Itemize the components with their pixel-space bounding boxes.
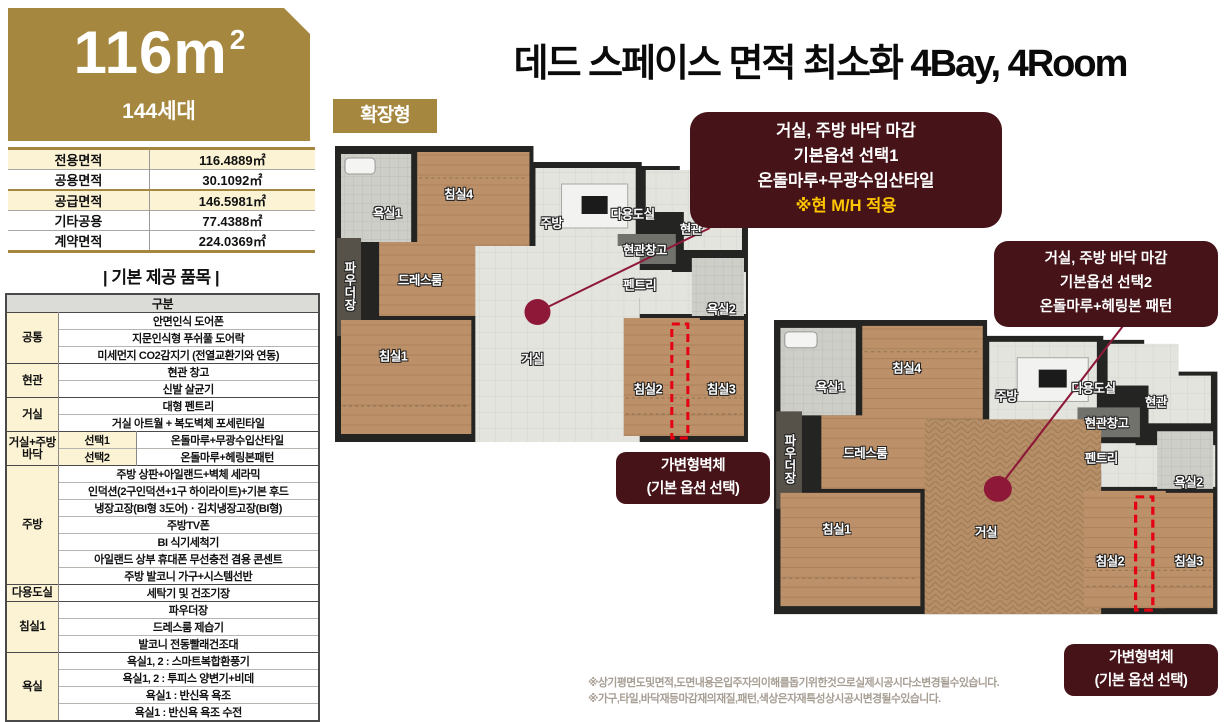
- callout-line: 온돌마루+헤링본 패턴: [994, 295, 1218, 319]
- footer-note-line: ※상기평면도및면적,도면내용은입주자의이해를돕기위한것으로실제시공시다소변경될수…: [588, 676, 999, 692]
- footer-note-line: ※가구,타일,바닥재등마감재의재질,패턴,색상은자재특성상시공시변경될수있습니다…: [588, 692, 999, 708]
- group-label: 거실: [6, 398, 58, 432]
- area-value: 224.0369㎡: [149, 231, 315, 252]
- room-label-living: 거실: [521, 348, 543, 367]
- room-label-kitchen: 주방: [540, 212, 562, 231]
- room-label-bed3: 침실3: [1174, 551, 1202, 570]
- unit-size-superscript: 2: [230, 24, 247, 55]
- room-label-pantry: 펜트리: [1085, 448, 1118, 467]
- callout-line: 온돌마루+무광수입산타일: [690, 169, 1002, 194]
- room-label-powder: 파우더장: [780, 434, 799, 484]
- movable-wall-label-2: 가변형벽체 (기본 옵션 선택): [1064, 644, 1218, 696]
- table-row: 욕실욕실1, 2 : 스마트복합환풍기: [6, 653, 319, 670]
- area-label: 공급면적: [8, 190, 149, 211]
- area-label: 전용면적: [8, 149, 149, 170]
- item-cell: 파우더장: [58, 602, 319, 619]
- item-cell: 드레스룸 제습기: [58, 619, 319, 636]
- item-cell: 주방 발코니 가구+시스템선반: [58, 568, 319, 585]
- item-cell: BI 식기세척기: [58, 534, 319, 551]
- table-row: 현관현관 창고: [6, 364, 319, 381]
- wall-label-line: 가변형벽체: [616, 455, 770, 478]
- table-row: 침실1파우더장: [6, 602, 319, 619]
- item-cell: 신발 살균기: [58, 381, 319, 398]
- room-label-living: 거실: [975, 521, 997, 540]
- item-cell: 지문인식형 푸쉬풀 도어락: [58, 330, 319, 347]
- item-cell: 욕실1, 2 : 투피스 양변기+비데: [58, 670, 319, 687]
- group-label: 공통: [6, 313, 58, 364]
- wall-label-line: (기본 옵션 선택): [616, 478, 770, 501]
- table-row: 기타공용 77.4388㎡: [8, 211, 315, 231]
- table-row: 거실+주방바닥선택1온돌마루+무광수입산타일: [6, 432, 319, 449]
- item-cell: 욕실1, 2 : 스마트복합환풍기: [58, 653, 319, 670]
- callout-line: 거실, 주방 바닥 마감: [994, 247, 1218, 271]
- item-cell: 인덕션(2구인덕션+1구 하이라이트)+기본 후드: [58, 483, 319, 500]
- callout-line: 기본옵션 선택1: [690, 144, 1002, 169]
- option-value: 온돌마루+무광수입산타일: [136, 432, 319, 449]
- area-summary-table: 전용면적 116.4889㎡ 공용면적 30.1092㎡ 공급면적 146.59…: [8, 147, 315, 253]
- room-label-bed2: 침실2: [1096, 551, 1124, 570]
- group-label: 침실1: [6, 602, 58, 653]
- item-cell: 미세먼지 CO2감지기 (전열교환기와 연동): [58, 347, 319, 364]
- item-cell: 욕실1 : 반신욕 욕조: [58, 687, 319, 704]
- room-label-bed3: 침실3: [707, 378, 735, 397]
- room-label-dressroom: 드레스룸: [398, 269, 442, 288]
- item-cell: 거실 아트월 + 복도벽체 포세린타일: [58, 415, 319, 432]
- callout-highlight: ※현 M/H 적용: [690, 194, 1002, 219]
- items-section-title: | 기본 제공 품목 |: [0, 263, 322, 288]
- table-row: 전용면적 116.4889㎡: [8, 149, 315, 170]
- area-value: 77.4388㎡: [149, 211, 315, 231]
- households-count: 144세대: [122, 95, 196, 125]
- area-label: 계약면적: [8, 231, 149, 252]
- room-label-bath1: 욕실1: [373, 203, 401, 222]
- page-title: 데드 스페이스 면적 최소화 4Bay, 4Room: [470, 32, 1170, 87]
- room-label-powder: 파우더장: [340, 261, 359, 311]
- wall-label-line: (기본 옵션 선택): [1064, 670, 1218, 693]
- floor-plan-2: 욕실1 침실4 주방 다용도실 현관 현관창고 펜트리 파우더장 드레스룸 침실…: [774, 314, 1225, 627]
- table-row: 계약면적 224.0369㎡: [8, 231, 315, 252]
- table-row: 공용면적 30.1092㎡: [8, 170, 315, 191]
- room-label-entrance-storage: 현관창고: [623, 239, 667, 258]
- callout-floor-option-1: 거실, 주방 바닥 마감 기본옵션 선택1 온돌마루+무광수입산타일 ※현 M/…: [690, 112, 1002, 228]
- movable-wall-label-1: 가변형벽체 (기본 옵션 선택): [616, 452, 770, 504]
- room-label-utility: 다용도실: [611, 204, 655, 223]
- room-label-bath1: 욕실1: [816, 376, 844, 395]
- room-label-entrance: 현관: [1145, 392, 1167, 411]
- item-cell: 안면인식 도어폰: [58, 313, 319, 330]
- group-label: 주방: [6, 466, 58, 585]
- callout-line: 기본옵션 선택2: [994, 271, 1218, 295]
- option-name: 선택1: [58, 432, 136, 449]
- room-label-kitchen: 주방: [995, 386, 1017, 405]
- expansion-type-badge: 확장형: [333, 99, 437, 133]
- table-row: 다용도실세탁기 및 건조기장: [6, 585, 319, 602]
- footer-notes: ※상기평면도및면적,도면내용은입주자의이해를돕기위한것으로실제시공시다소변경될수…: [588, 676, 999, 707]
- table-row: 공통안면인식 도어폰: [6, 313, 319, 330]
- callout-floor-option-2: 거실, 주방 바닥 마감 기본옵션 선택2 온돌마루+헤링본 패턴: [994, 241, 1218, 327]
- item-cell: 아일랜드 상부 휴대폰 무선충전 겸용 콘센트: [58, 551, 319, 568]
- room-label-bed1: 침실1: [379, 346, 407, 365]
- item-cell: 주방 상판+아일랜드+벽체 세라믹: [58, 466, 319, 483]
- item-cell: 주방TV폰: [58, 517, 319, 534]
- group-label: 거실+주방바닥: [6, 432, 58, 466]
- room-label-bed4: 침실4: [892, 357, 920, 376]
- column-header: 구분: [6, 294, 319, 313]
- room-label-bed4: 침실4: [444, 183, 472, 202]
- provided-items-table: 구분 공통안면인식 도어폰 지문인식형 푸쉬풀 도어락 미세먼지 CO2감지기 …: [5, 293, 320, 722]
- area-value: 116.4889㎡: [149, 149, 315, 170]
- room-label-bed2: 침실2: [634, 378, 662, 397]
- room-label-bath2: 욕실2: [707, 298, 735, 317]
- room-label-bath2: 욕실2: [1174, 471, 1202, 490]
- callout-line: 거실, 주방 바닥 마감: [690, 119, 1002, 144]
- item-cell: 세탁기 및 건조기장: [58, 585, 319, 602]
- area-value: 146.5981㎡: [149, 190, 315, 211]
- table-row: 거실대형 펜트리: [6, 398, 319, 415]
- room-label-entrance-storage: 현관창고: [1085, 413, 1129, 432]
- table-header-row: 구분: [6, 294, 319, 313]
- group-label: 욕실: [6, 653, 58, 722]
- wall-label-line: 가변형벽체: [1064, 647, 1218, 670]
- room-label-dressroom: 드레스룸: [843, 443, 887, 462]
- item-cell: 냉장고장(BI형 3도어)ㆍ김치냉장고장(BI형): [58, 500, 319, 517]
- unit-size-banner: 116m2 144세대: [8, 8, 310, 141]
- option-name: 선택2: [58, 449, 136, 466]
- item-cell: 현관 창고: [58, 364, 319, 381]
- option-value: 온돌마루+헤링본패턴: [136, 449, 319, 466]
- group-label: 현관: [6, 364, 58, 398]
- room-label-pantry: 펜트리: [623, 274, 656, 293]
- item-cell: 욕실1 : 반신욕 욕조 수전: [58, 704, 319, 722]
- item-cell: 발코니 전동빨래건조대: [58, 636, 319, 653]
- room-label-utility: 다용도실: [1072, 377, 1116, 396]
- room-label-bed1: 침실1: [822, 518, 850, 537]
- table-row: 주방주방 상판+아일랜드+벽체 세라믹: [6, 466, 319, 483]
- group-label: 다용도실: [6, 585, 58, 602]
- area-label: 기타공용: [8, 211, 149, 231]
- area-value: 30.1092㎡: [149, 170, 315, 191]
- unit-size: 116m2: [74, 24, 245, 93]
- item-cell: 대형 펜트리: [58, 398, 319, 415]
- table-row: 공급면적 146.5981㎡: [8, 190, 315, 211]
- area-label: 공용면적: [8, 170, 149, 191]
